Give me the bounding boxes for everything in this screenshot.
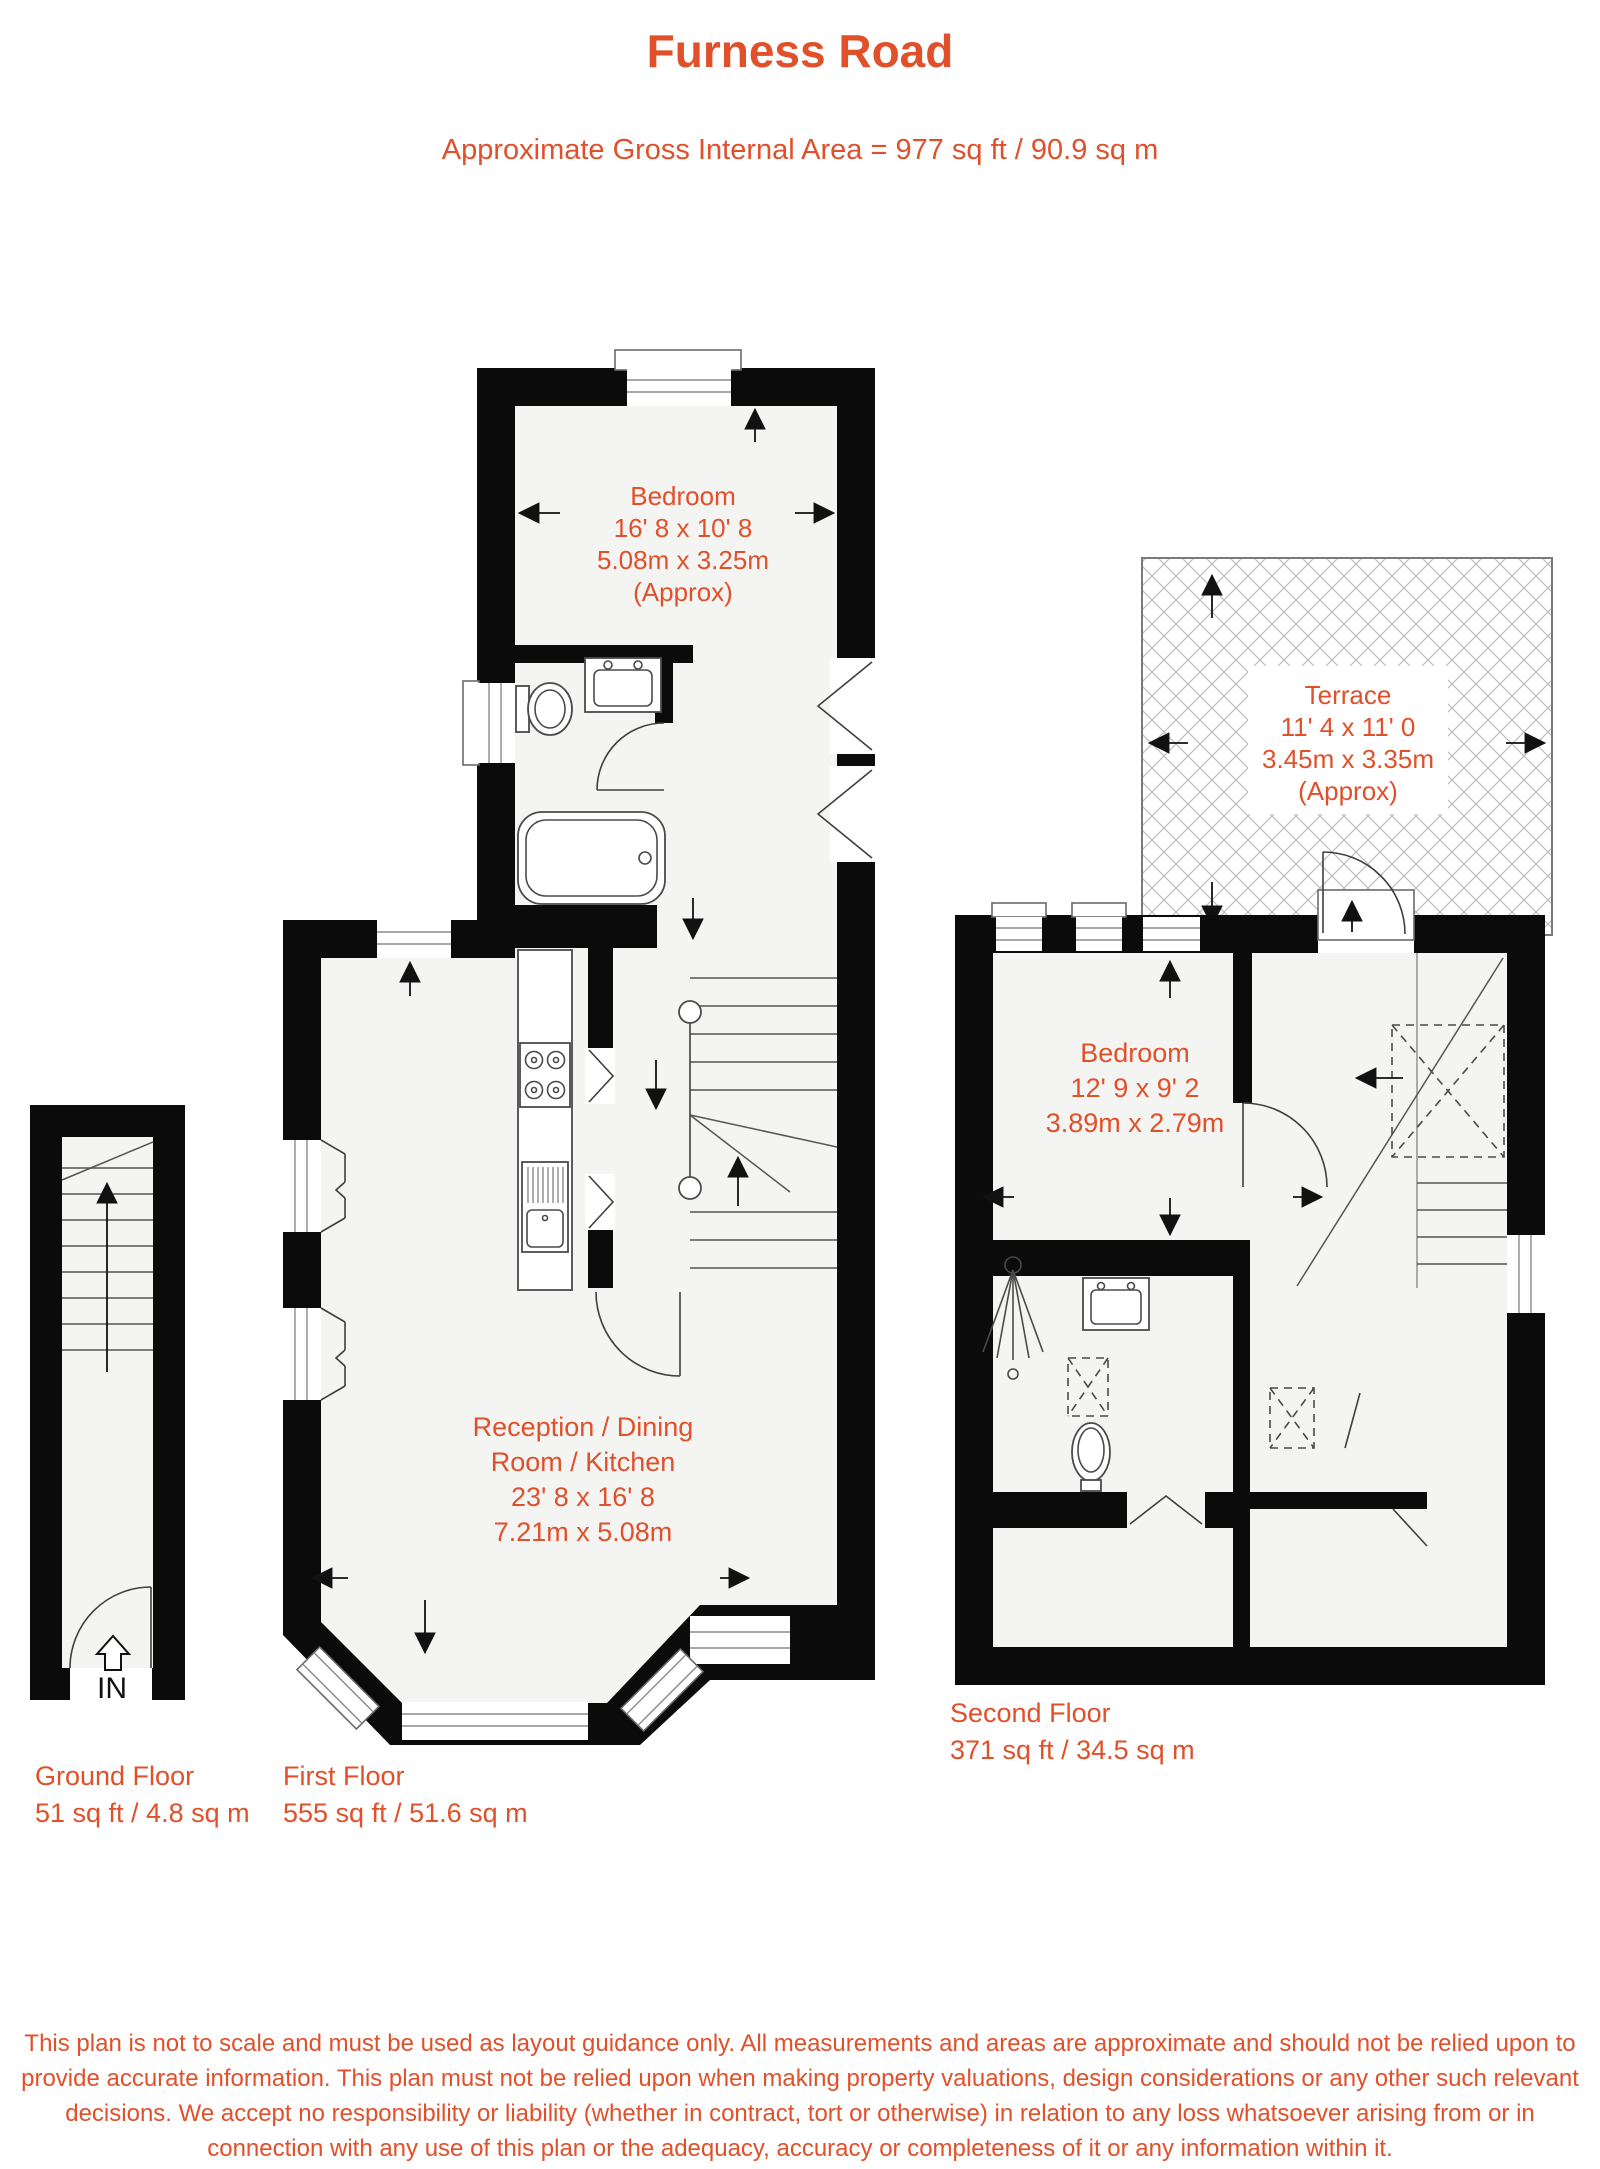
- kitchen-sink-symbol: [522, 1162, 568, 1252]
- floor-area: 51 sq ft / 4.8 sq m: [35, 1795, 250, 1832]
- room-name: Bedroom: [483, 480, 883, 512]
- ground-floor-label: Ground Floor 51 sq ft / 4.8 sq m: [35, 1758, 250, 1832]
- floorplan-canvas: [0, 0, 1600, 2169]
- room-size-imperial: 23' 8 x 16' 8: [433, 1480, 733, 1515]
- window-symbol: [1072, 903, 1126, 951]
- room-name-line1: Reception / Dining: [433, 1410, 733, 1445]
- toilet-symbol: [516, 683, 572, 735]
- bedroom-second-label: Bedroom 12' 9 x 9' 2 3.89m x 2.79m: [985, 1036, 1285, 1141]
- sink-symbol: [585, 658, 661, 712]
- reception-label: Reception / Dining Room / Kitchen 23' 8 …: [433, 1410, 733, 1550]
- window-symbol: [377, 920, 451, 958]
- ground-floor-plan: [30, 1105, 185, 1700]
- page-subtitle: Approximate Gross Internal Area = 977 sq…: [0, 134, 1600, 167]
- page-title: Furness Road: [0, 24, 1600, 78]
- floor-area: 555 sq ft / 51.6 sq m: [283, 1795, 528, 1832]
- bedroom-first-label: Bedroom 16' 8 x 10' 8 5.08m x 3.25m (App…: [483, 480, 883, 608]
- window-symbol: [615, 350, 741, 406]
- room-name: Bedroom: [985, 1036, 1285, 1071]
- room-size-imperial: 12' 9 x 9' 2: [985, 1071, 1285, 1106]
- room-size-imperial: 11' 4 x 11' 0: [1247, 711, 1449, 743]
- terrace-label: Terrace 11' 4 x 11' 0 3.45m x 3.35m (App…: [1247, 679, 1449, 807]
- bathtub-symbol: [518, 812, 665, 904]
- entrance-in-label: IN: [70, 1672, 154, 1706]
- floorplan-page: Furness Road Approximate Gross Internal …: [0, 0, 1600, 2169]
- disclaimer-text: This plan is not to scale and must be us…: [20, 2026, 1580, 2166]
- room-name: Terrace: [1247, 679, 1449, 711]
- stove-symbol: [520, 1043, 570, 1107]
- second-floor-label: Second Floor 371 sq ft / 34.5 sq m: [950, 1695, 1195, 1769]
- window-symbol: [992, 903, 1046, 951]
- second-floor-plan: [955, 852, 1545, 1685]
- window-symbol: [463, 681, 515, 765]
- first-floor-label: First Floor 555 sq ft / 51.6 sq m: [283, 1758, 528, 1832]
- floor-area: 371 sq ft / 34.5 sq m: [950, 1732, 1195, 1769]
- floor-name: Second Floor: [950, 1695, 1195, 1732]
- room-approx: (Approx): [1247, 775, 1449, 807]
- room-size-imperial: 16' 8 x 10' 8: [483, 512, 883, 544]
- floor-name: Ground Floor: [35, 1758, 250, 1795]
- room-size-metric: 3.89m x 2.79m: [985, 1106, 1285, 1141]
- room-name-line2: Room / Kitchen: [433, 1445, 733, 1480]
- room-size-metric: 5.08m x 3.25m: [483, 544, 883, 576]
- window-symbol: [1143, 917, 1200, 951]
- room-size-metric: 7.21m x 5.08m: [433, 1515, 733, 1550]
- window-symbol: [1507, 1235, 1545, 1313]
- sink-symbol: [1083, 1278, 1149, 1330]
- room-size-metric: 3.45m x 3.35m: [1247, 743, 1449, 775]
- room-approx: (Approx): [483, 576, 883, 608]
- window-symbol: [690, 1616, 790, 1664]
- floor-name: First Floor: [283, 1758, 528, 1795]
